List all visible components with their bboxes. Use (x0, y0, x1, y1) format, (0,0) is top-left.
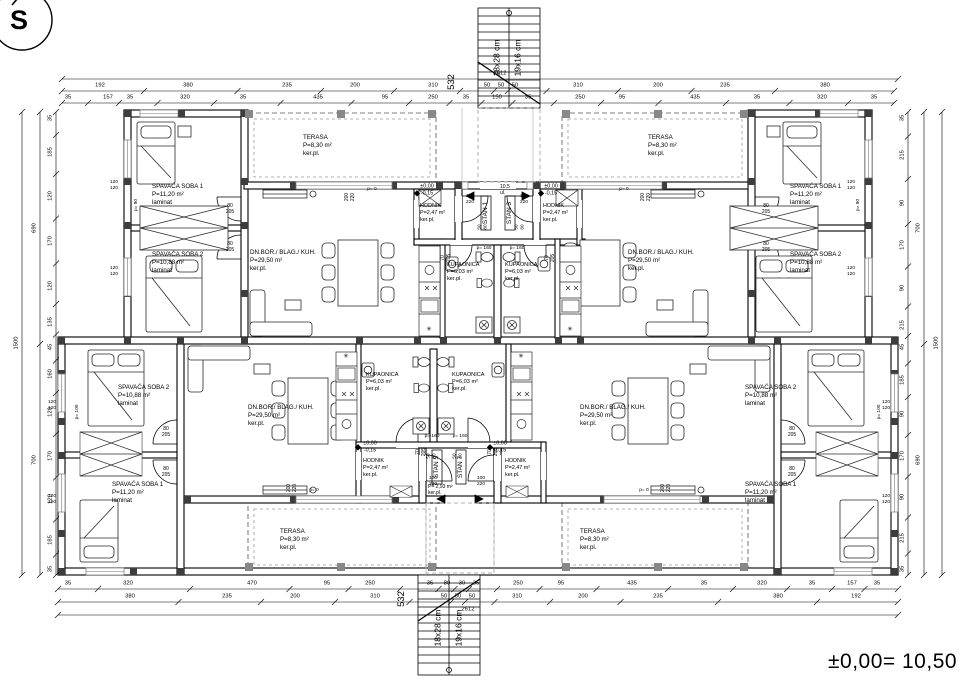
staircase-top (478, 8, 540, 182)
level-note: ±0,00= 10,50 (828, 650, 957, 674)
floor-plan-drawing (0, 0, 960, 690)
north-letter: S (10, 5, 28, 36)
floor-plan-page: 18x28 cm19x16 cm18x28 cm19x16 cm532532SP… (0, 0, 960, 690)
dim-right-major (921, 109, 927, 578)
dim-right-minor (905, 109, 911, 578)
dim-right-overall (939, 109, 945, 578)
dim-left-overall (19, 109, 25, 578)
dim-left-major (37, 109, 43, 578)
